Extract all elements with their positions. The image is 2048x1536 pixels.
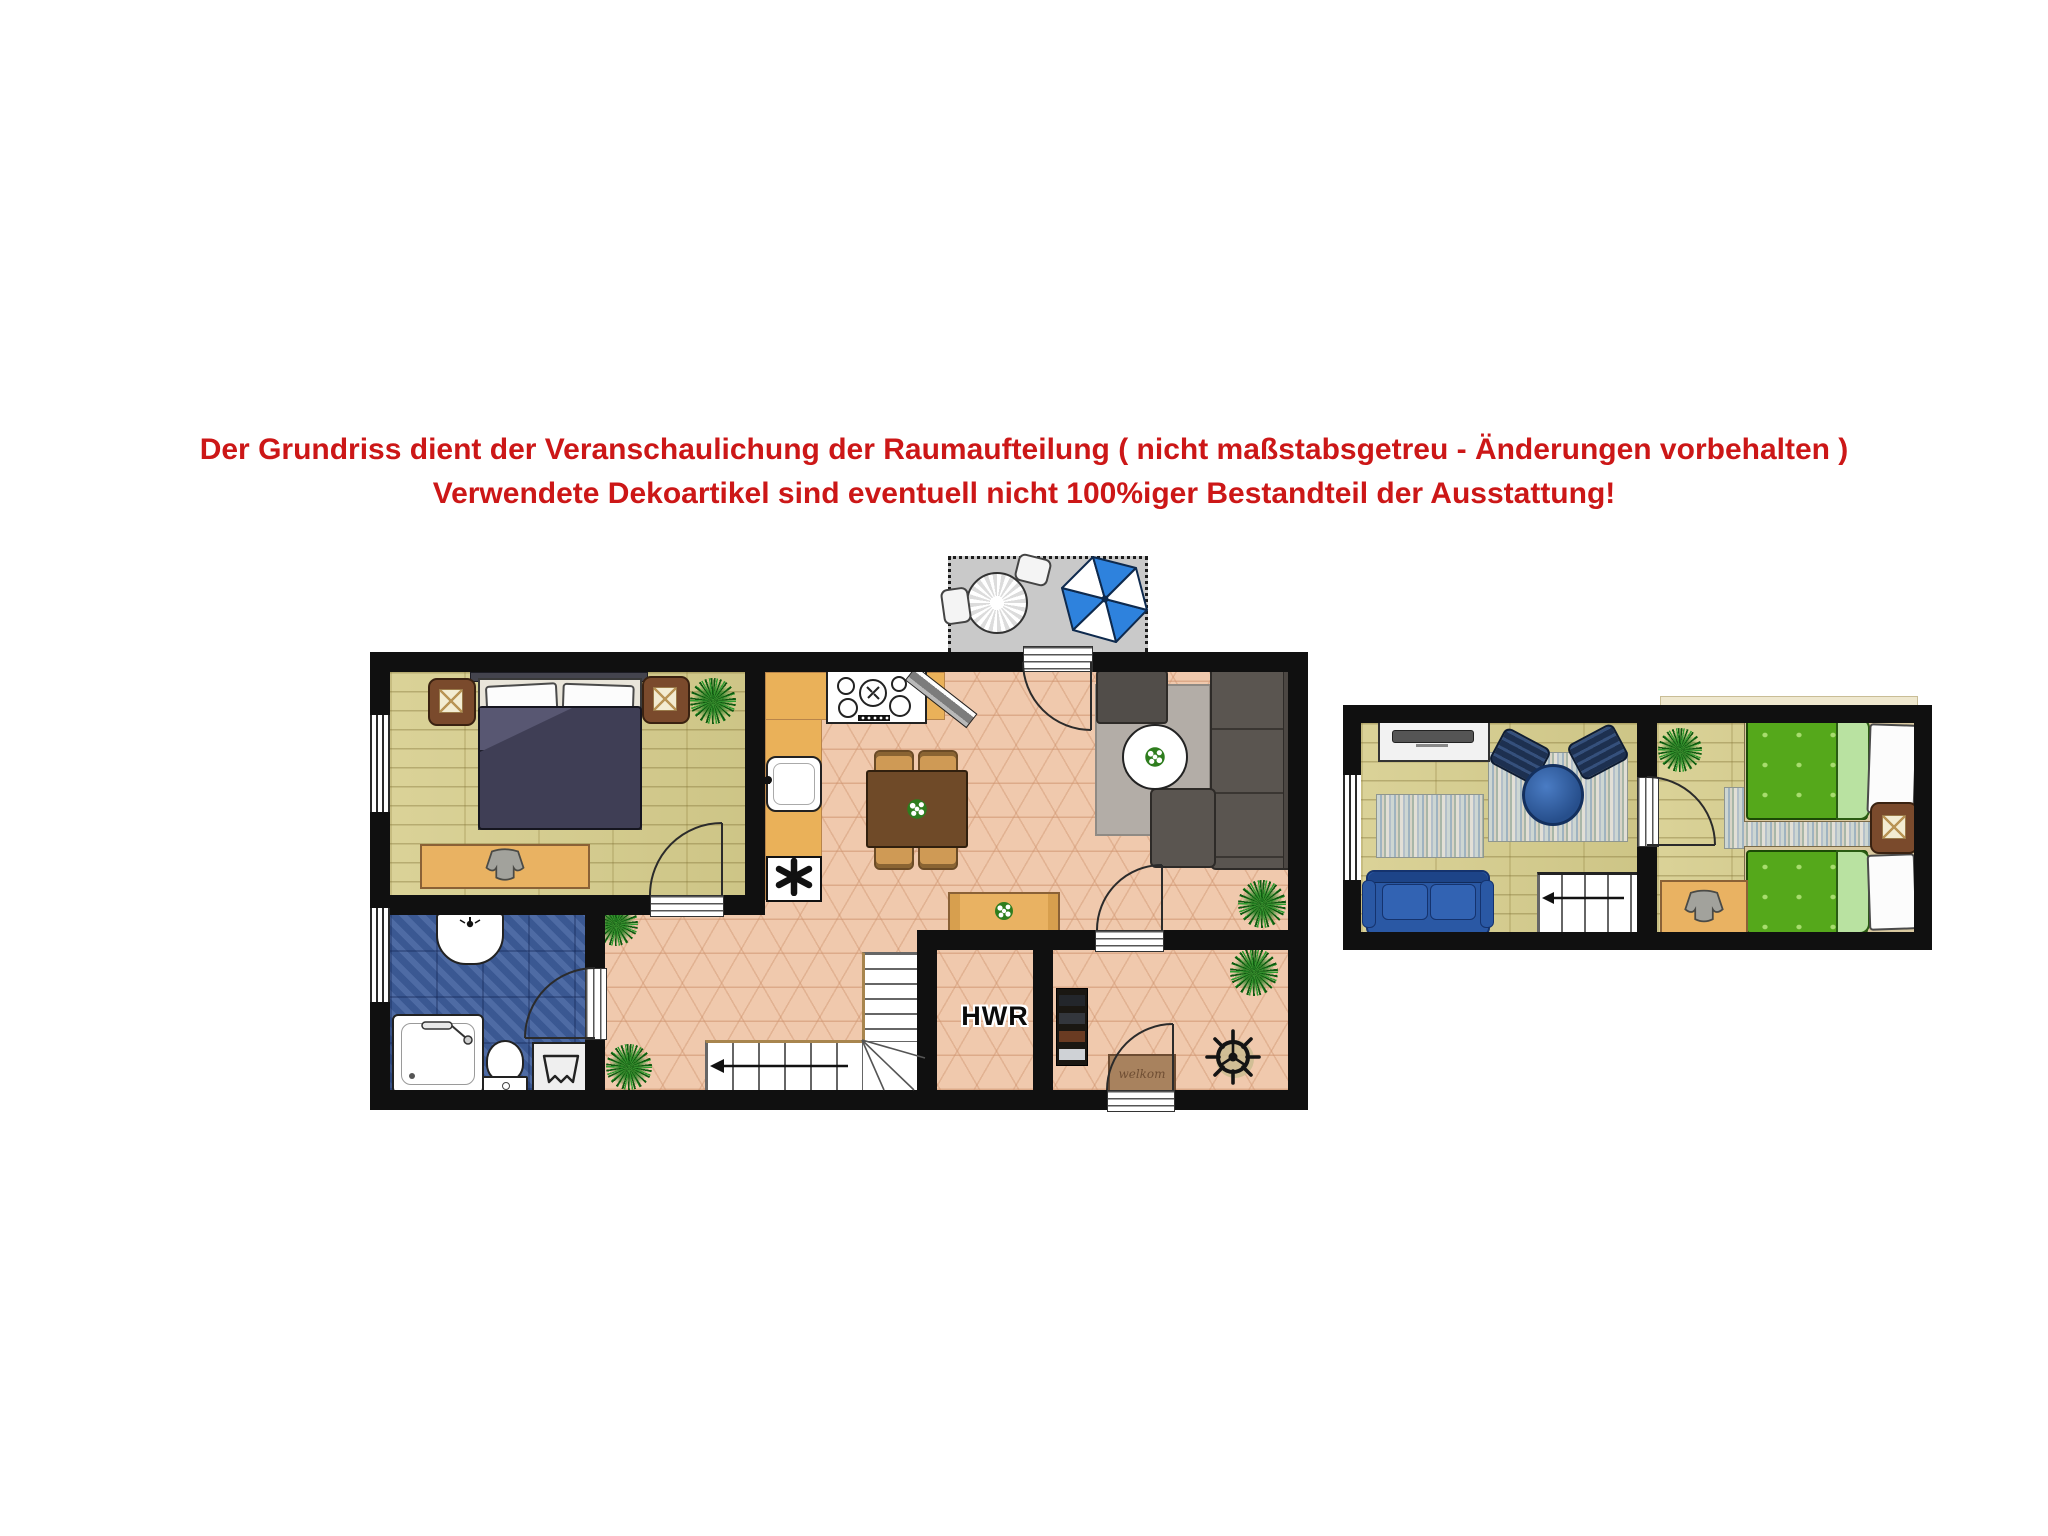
staircase-lower-run	[705, 1040, 864, 1094]
wall	[370, 652, 1023, 672]
door-mat-text: welkom	[1118, 1067, 1165, 1081]
dishwasher	[766, 856, 822, 902]
clothes-bench	[420, 844, 590, 889]
nightstand	[1870, 802, 1918, 854]
dining-table	[866, 770, 968, 848]
duvet-fold	[480, 708, 572, 752]
sofa-cushion	[1382, 884, 1428, 920]
wall	[1053, 930, 1095, 950]
wall	[1343, 705, 1361, 775]
flush-button	[502, 1082, 510, 1090]
bathroom-sink	[436, 913, 504, 965]
duvet-fold	[1836, 718, 1870, 820]
bedside-lamp-icon	[653, 687, 677, 711]
front-door	[1107, 1090, 1175, 1112]
disclaimer-text: Der Grundriss dient der Veranschaulichun…	[0, 428, 2048, 516]
floor-plan-page: Der Grundriss dient der Veranschaulichun…	[0, 0, 2048, 1536]
tv-icon	[1392, 730, 1474, 743]
tv-stand	[1416, 744, 1448, 747]
wall	[745, 672, 765, 895]
bedroom-door	[650, 895, 724, 917]
window	[370, 715, 390, 812]
sink-basin	[773, 763, 815, 805]
parasol-icon	[1056, 552, 1154, 648]
wall	[585, 1038, 605, 1090]
sofa-armrest	[1480, 880, 1494, 928]
wall	[1288, 652, 1308, 1110]
appliance-asterisk-icon	[770, 858, 818, 896]
bathroom-door	[585, 968, 607, 1040]
shoe-shelf	[1059, 1031, 1085, 1042]
flowers-icon	[992, 899, 1016, 923]
shoe-shelf	[1059, 1013, 1085, 1024]
living-room-door	[1095, 930, 1164, 952]
shower	[392, 1014, 484, 1094]
sweater-icon	[1682, 886, 1726, 926]
flowers-icon	[1142, 744, 1168, 770]
door-mat: welkom	[1108, 1054, 1176, 1094]
faucet-icon	[438, 915, 502, 935]
wall	[1162, 930, 1288, 950]
window	[1343, 775, 1361, 880]
wall	[1637, 705, 1657, 777]
flowers-icon	[904, 796, 930, 822]
upper-room-door	[1637, 777, 1659, 847]
blue-sofa	[1366, 870, 1490, 936]
faucet-icon	[764, 776, 772, 784]
plant-icon	[1658, 728, 1702, 772]
tv-lowboard	[1378, 720, 1490, 762]
disclaimer-line-2: Verwendete Dekoartikel sind eventuell ni…	[0, 472, 2048, 516]
coffee-table	[1122, 724, 1188, 790]
wall	[1637, 845, 1657, 950]
laundry-basket-icon	[534, 1044, 588, 1094]
plant-icon	[606, 1044, 652, 1090]
utility-room-label: HWR	[930, 1001, 1060, 1032]
plant-icon	[1238, 880, 1286, 928]
ottoman	[1096, 670, 1168, 724]
wall	[1914, 705, 1932, 950]
wall	[1091, 652, 1308, 672]
rag-rug	[1376, 794, 1484, 858]
toilet	[482, 1040, 526, 1094]
wall	[370, 812, 390, 908]
wall	[1343, 880, 1361, 950]
wall	[370, 895, 650, 915]
sideboard	[948, 892, 1060, 934]
wall	[370, 1002, 390, 1110]
wall	[370, 652, 390, 715]
sofa-chaise	[1150, 788, 1216, 868]
wall	[585, 915, 605, 968]
laundry-basket	[532, 1042, 590, 1096]
shoe-rack	[1056, 988, 1088, 1066]
nightstand	[642, 676, 690, 724]
sofa-cushion	[1430, 884, 1476, 920]
shoe-shelf	[1059, 995, 1085, 1006]
wall	[722, 895, 765, 915]
sofa-armrest	[1362, 880, 1376, 928]
shoe-shelf	[1059, 1049, 1085, 1060]
shower-head-icon	[394, 1016, 482, 1092]
pillow	[1867, 853, 1918, 931]
terrace-door	[1023, 646, 1093, 672]
wall	[937, 930, 1053, 950]
plant-icon	[1230, 948, 1278, 996]
bedside-lamp-icon	[439, 689, 463, 713]
ship-wheel-icon	[1202, 1026, 1264, 1088]
clothes-bench	[1660, 880, 1748, 936]
staircase-upper-floor	[1537, 872, 1639, 936]
patio-chair	[940, 586, 973, 626]
nightstand	[428, 678, 476, 726]
patio-table	[966, 572, 1028, 634]
wall	[370, 1090, 1107, 1110]
disclaimer-line-1: Der Grundriss dient der Veranschaulichun…	[0, 428, 2048, 472]
duvet-fold	[1836, 850, 1870, 934]
bedside-lamp-icon	[1882, 815, 1906, 839]
round-table	[1522, 764, 1584, 826]
sofa-back	[1368, 872, 1488, 883]
sweater-icon	[483, 846, 527, 883]
window	[370, 908, 390, 1002]
kitchen-sink	[766, 756, 822, 812]
plant-icon	[690, 678, 736, 724]
bed-duvet	[478, 706, 642, 830]
